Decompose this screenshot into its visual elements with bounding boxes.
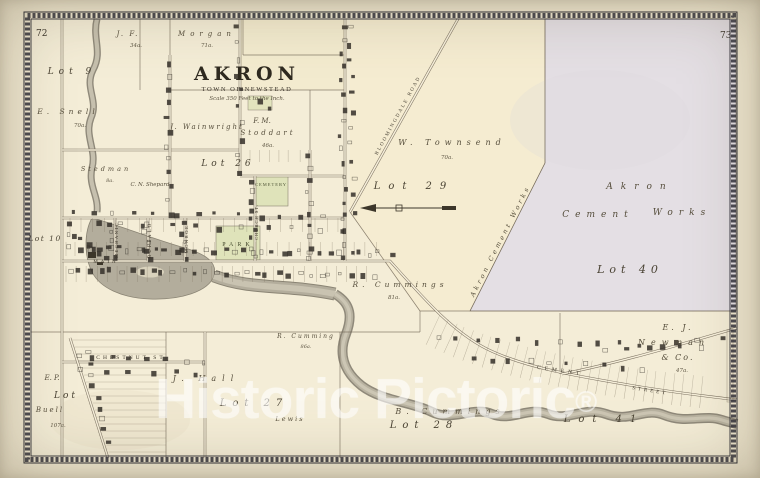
owner-b-cummings: B. Cummings	[394, 407, 504, 416]
map-title: AKRON	[193, 63, 300, 85]
owner-townsend-acres: 70a.	[441, 155, 453, 161]
owner-cement-works-3: Works	[653, 208, 711, 218]
paper-stain	[510, 70, 690, 170]
owner-newman-2: Newman	[637, 338, 710, 347]
owner-r-cumming-2: R. Cumming	[276, 333, 335, 340]
map-scale: Scale 350 Feet to the Inch.	[209, 96, 284, 102]
street-chestnut: CHESTNUT ST.	[96, 355, 169, 361]
label-lot-40: Lot 40	[596, 263, 663, 276]
place-cemetery: CEMETERY	[255, 182, 287, 187]
owner-jf: J. F.	[115, 30, 140, 38]
label-lot-28: Lot 28	[389, 420, 459, 431]
owner-hall: J. Hall	[171, 374, 240, 383]
map-plate: 72 73 AKRON TOWN OF NEWSTEAD Scale 350 F…	[0, 0, 760, 478]
label-lot-10: Lot 10	[27, 234, 61, 243]
owner-newman-3: & Co.	[661, 353, 694, 362]
map-subtitle: TOWN OF NEWSTEAD	[202, 86, 293, 93]
owner-buell-lot-word: Lot	[53, 391, 78, 401]
owner-r-cumming-2-acres: 86a.	[301, 344, 312, 350]
owner-r-cummings: R. Cummings	[351, 280, 447, 289]
street-mechanic: MECHANIC	[114, 222, 119, 258]
owner-buell-name: Buell	[35, 406, 64, 414]
street-monroe: MONROE	[184, 225, 189, 254]
owner-r-cummings-acres: 81a.	[388, 295, 400, 301]
owner-stedman-acres: 8a.	[106, 178, 114, 184]
street-main: MAIN	[93, 260, 118, 265]
owner-shepard: C. N. Shepard	[131, 182, 170, 188]
owner-stoddart-last: Stoddart	[240, 129, 295, 137]
owner-buell-acres: 107a.	[50, 423, 66, 429]
place-park: PARK	[222, 242, 253, 248]
label-lot-9: Lot 9	[47, 67, 97, 77]
owner-morgan: Morgan	[177, 30, 236, 38]
owner-townsend: W. Townsend	[398, 138, 506, 147]
label-lot-26: Lot 26	[200, 159, 254, 169]
owner-stedman: Stedman	[81, 165, 131, 173]
owner-wainwright: J. Wainwright	[168, 123, 244, 131]
street-buffalo: BUFFALO	[148, 222, 153, 258]
owner-snell: E. Snell	[36, 107, 98, 116]
cemetery-area	[254, 176, 288, 206]
owner-lewis: Lewis	[274, 415, 304, 423]
owner-jf-acres: 34a.	[130, 43, 142, 49]
owner-cement-works-2: Cement	[562, 210, 634, 220]
owner-stoddart-first: F. M.	[252, 117, 271, 125]
mill-building	[88, 252, 96, 258]
street-church: CHURCH ST.	[254, 204, 259, 240]
owner-newman-1: E. J.	[661, 323, 693, 332]
akron-map-svg: 72 73 AKRON TOWN OF NEWSTEAD Scale 350 F…	[0, 0, 760, 478]
owner-morgan-acres: 71a.	[201, 43, 213, 49]
owner-stoddart-acres: 46a.	[261, 143, 274, 149]
owner-buell-initials: E. P.	[43, 374, 59, 382]
label-lot-29: Lot 29	[373, 181, 455, 192]
owner-newman-acres: 47a.	[675, 368, 688, 374]
label-lot-27: Lot 27	[219, 398, 289, 409]
owner-snell-acres: 70a.	[74, 123, 86, 129]
label-lot-41: Lot 41	[563, 414, 645, 425]
owner-cement-works-1: Akron	[605, 182, 673, 192]
page-number-left: 72	[36, 29, 47, 39]
